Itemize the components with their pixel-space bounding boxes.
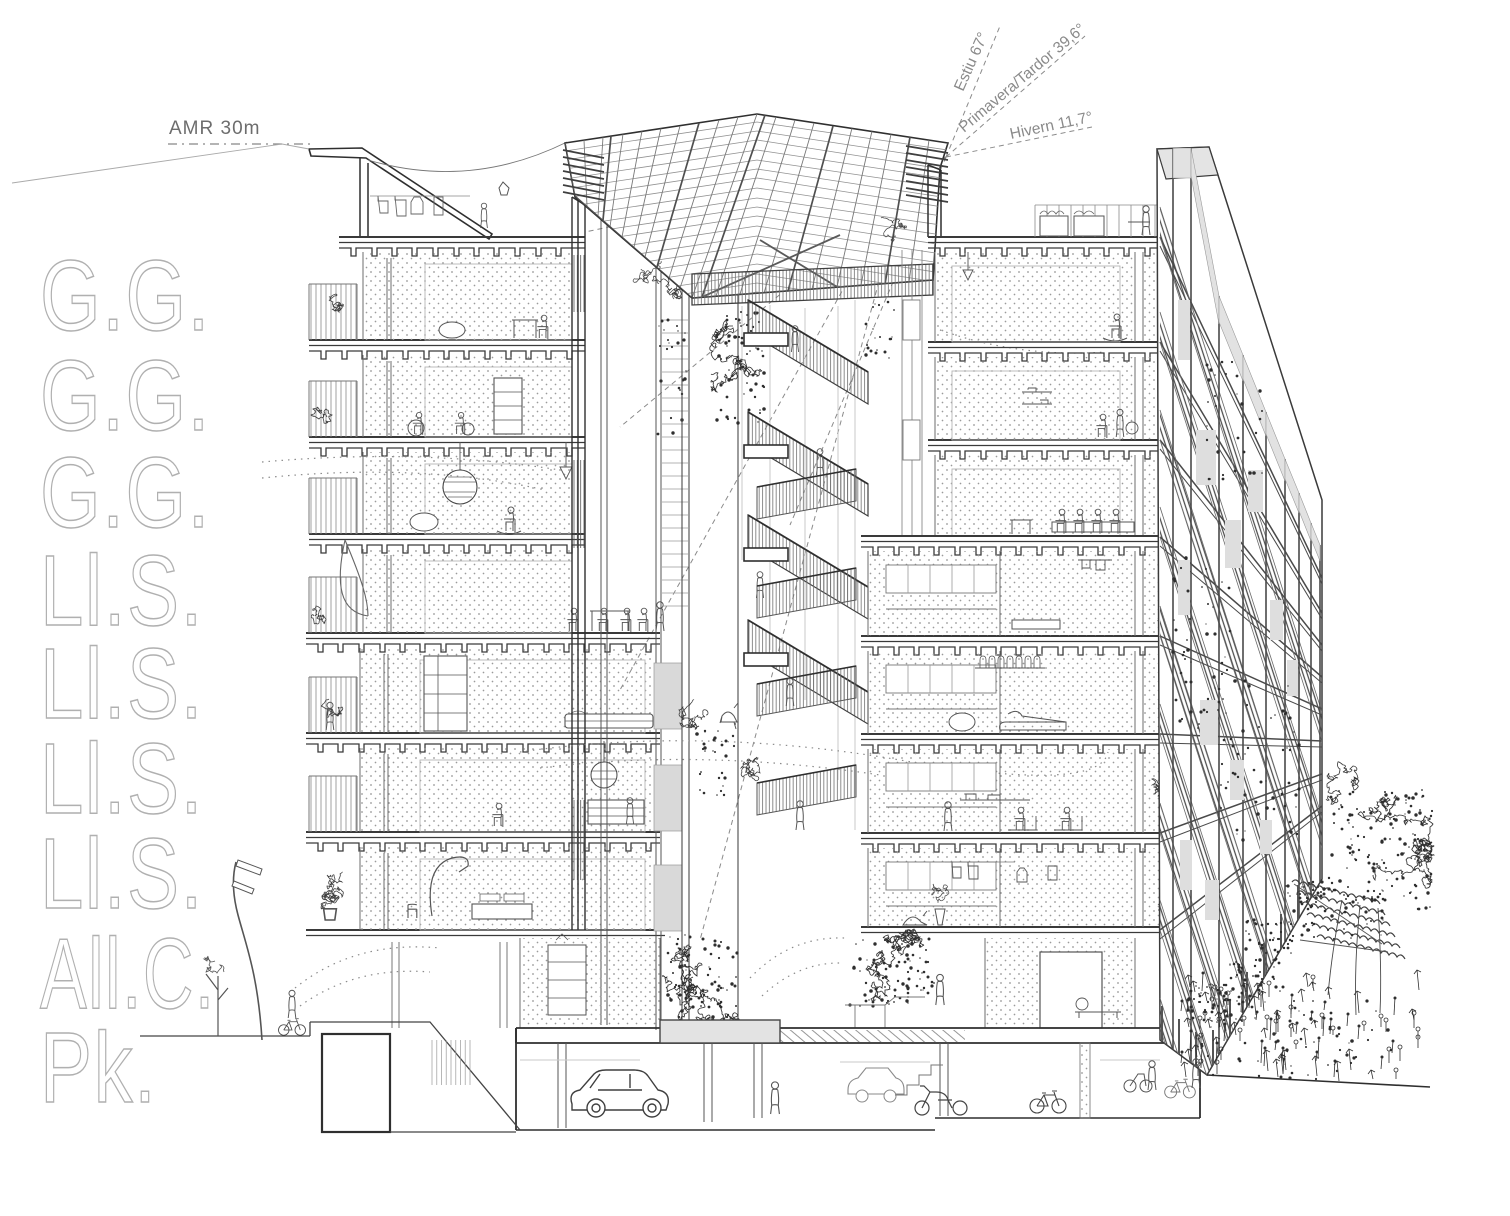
svg-text:AMR 30m: AMR 30m [169,118,260,139]
svg-text:Pk.: Pk. [40,1013,157,1125]
svg-text:G.G.: G.G. [40,341,211,453]
svg-text:G.G.: G.G. [40,438,211,550]
svg-text:G.G.: G.G. [40,241,211,353]
svg-text:Ll.S.: Ll.S. [40,819,204,931]
